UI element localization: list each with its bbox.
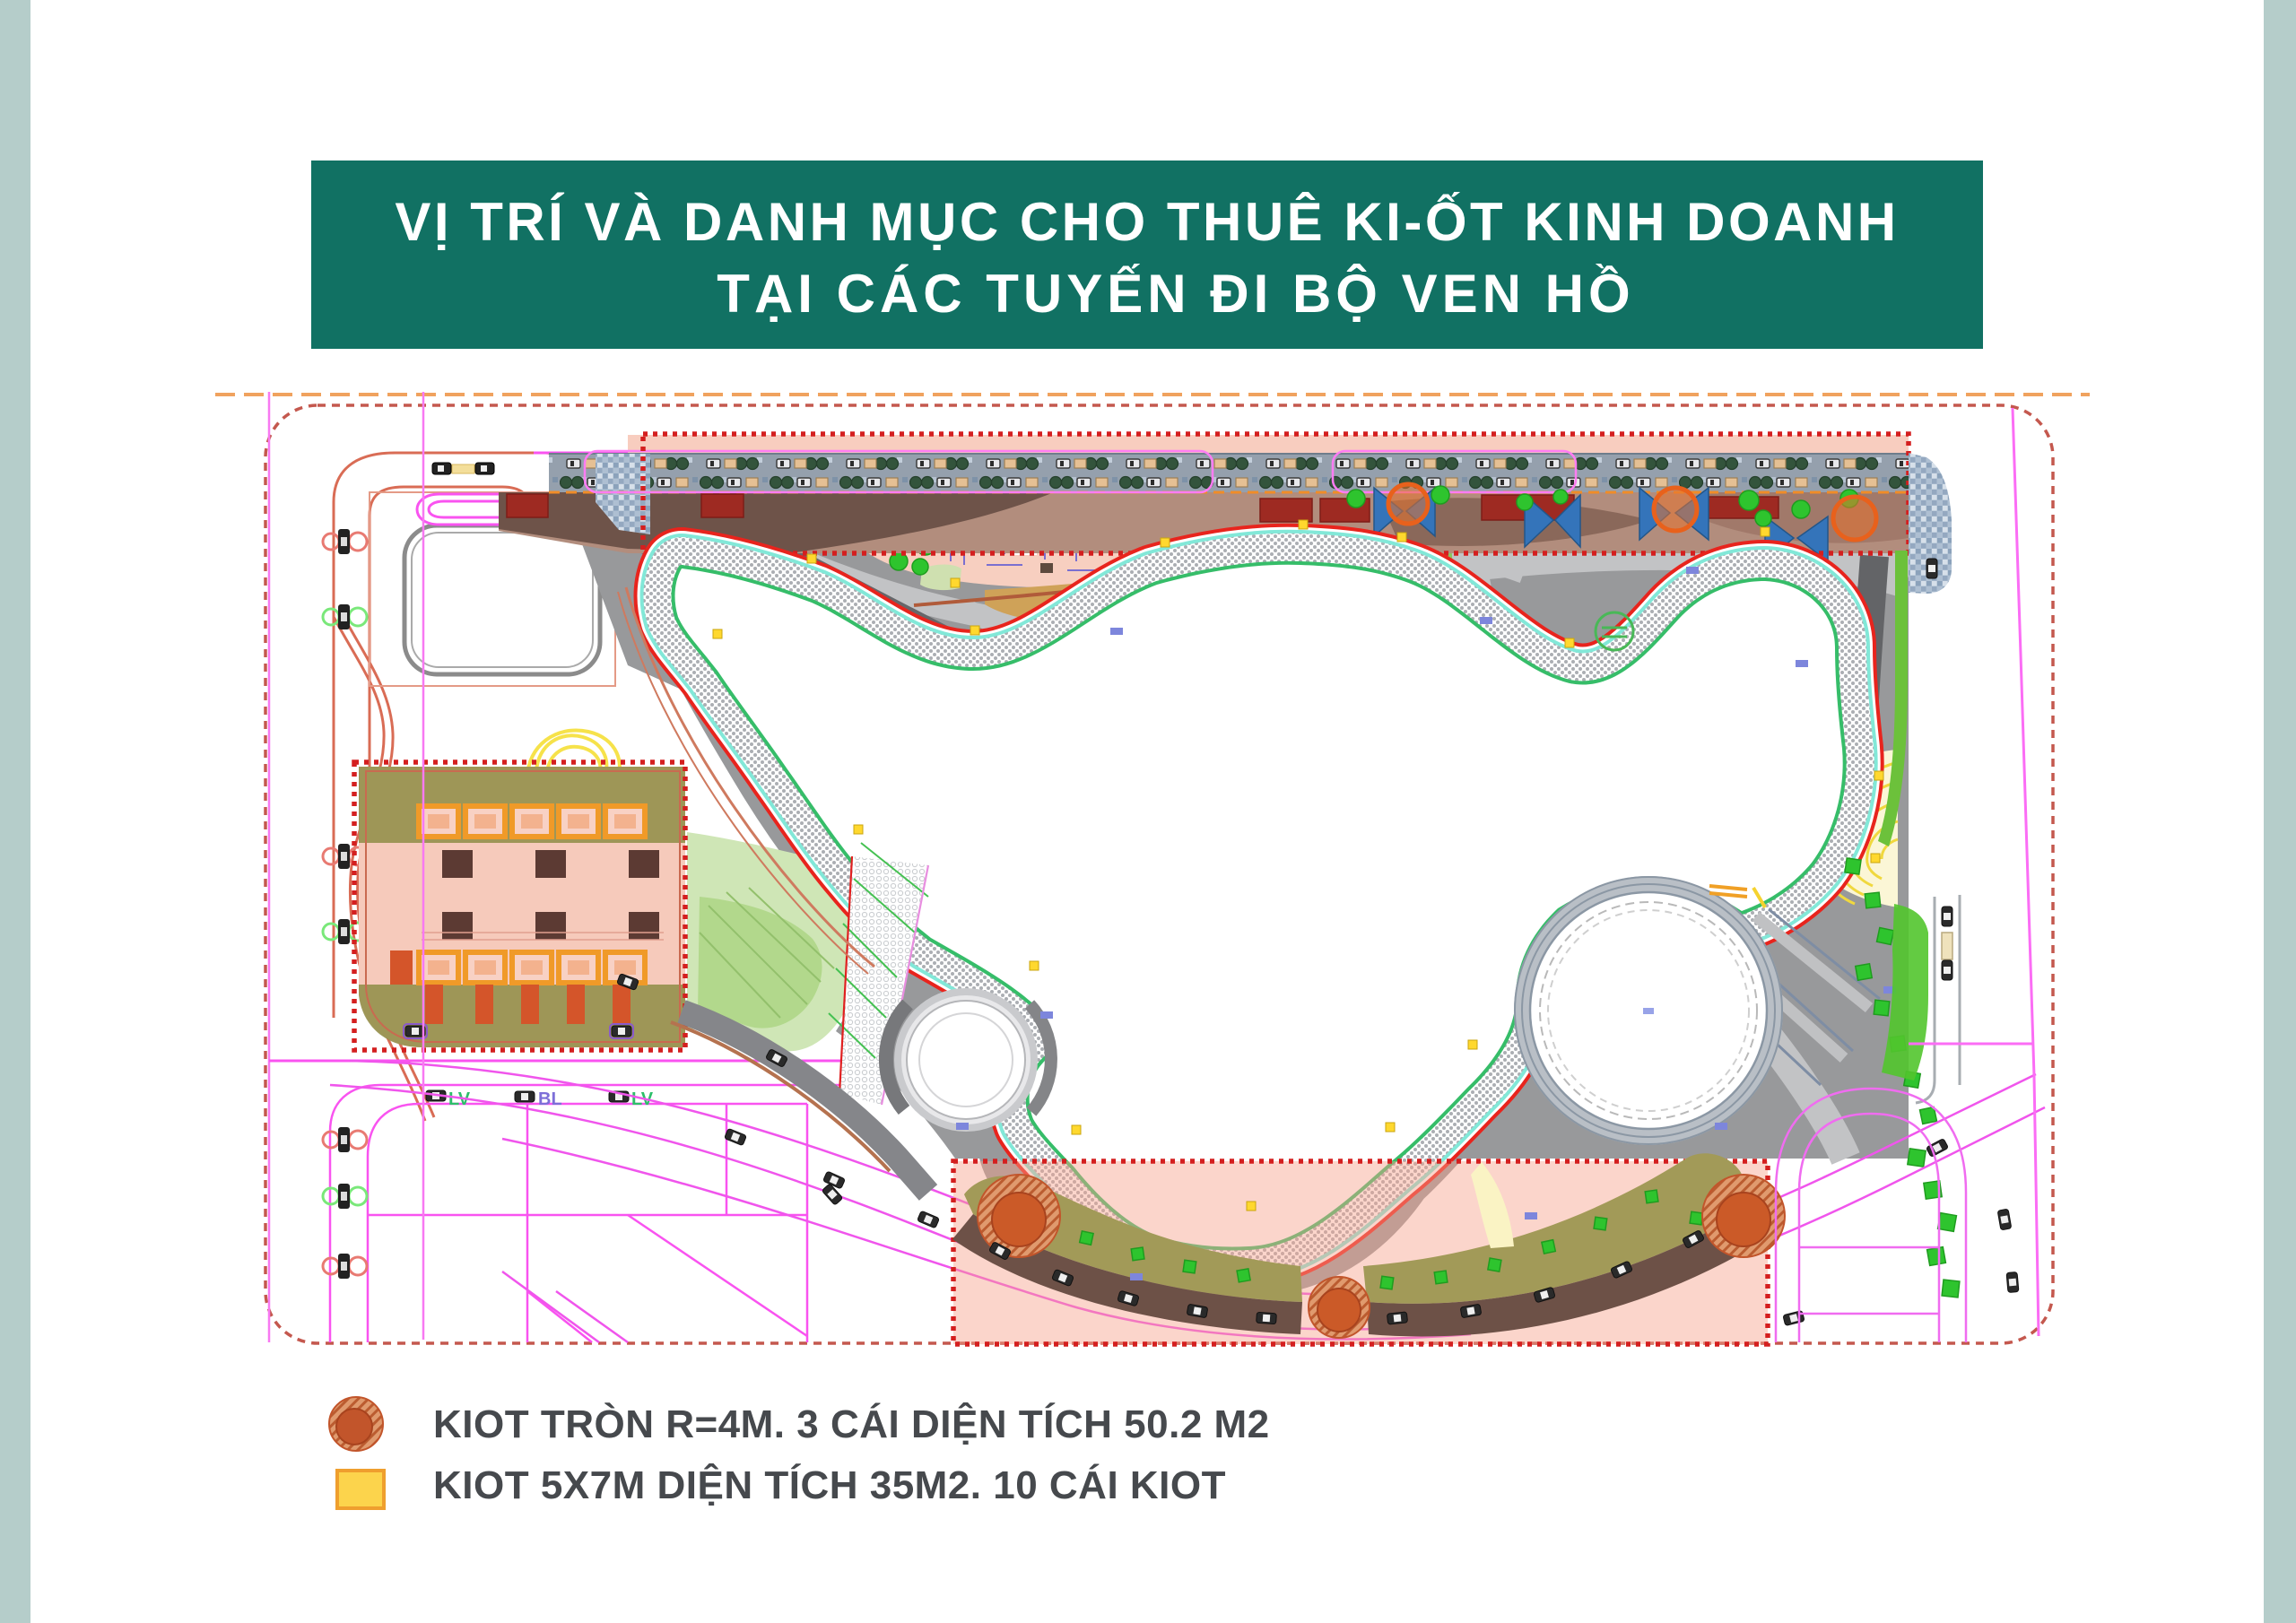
svg-text:BL: BL (538, 1089, 562, 1109)
